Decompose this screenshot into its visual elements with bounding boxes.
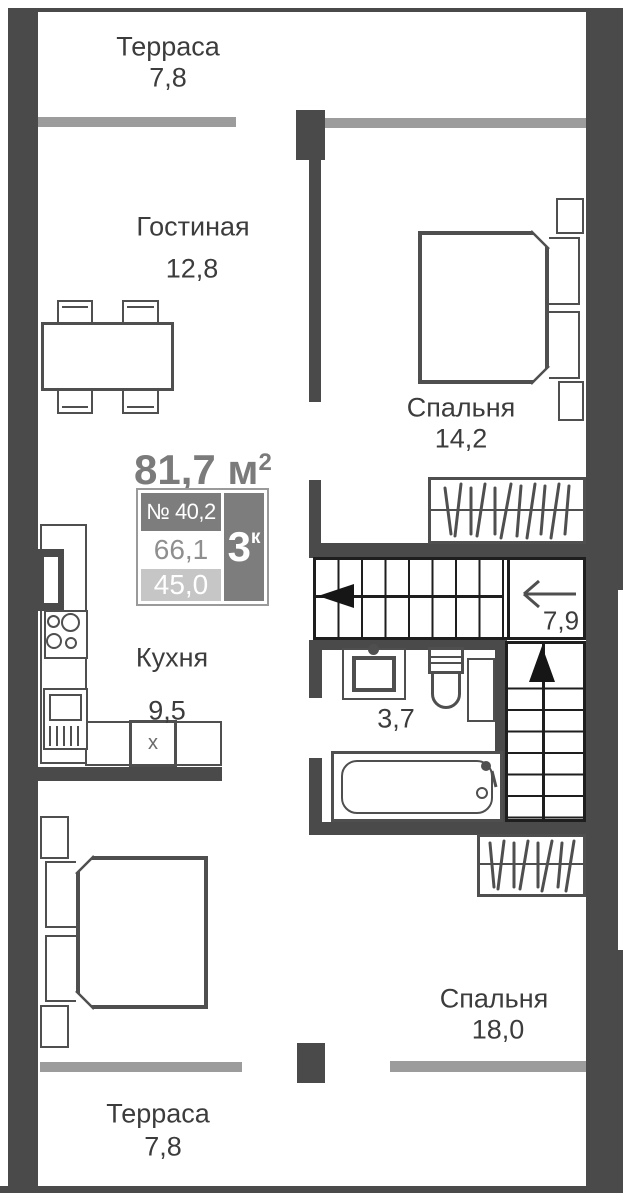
info-card-left-column: № 40,2 66,1 45,0 — [141, 493, 221, 601]
bed-pillow — [546, 237, 580, 305]
dining-table — [41, 322, 174, 391]
wall-living-bedroom-upper — [309, 148, 321, 402]
toilet-tank — [428, 647, 464, 674]
chair-back-line — [127, 306, 154, 308]
wardrobe-hangers-icon — [480, 837, 583, 894]
kitchen-tall-cabinet-inner — [44, 557, 58, 603]
right-edge-notch — [616, 590, 623, 950]
dishwasher-hatch-icon — [49, 726, 82, 746]
wall-top — [38, 8, 623, 12]
nightstand — [556, 198, 584, 234]
bed-mattress — [76, 856, 208, 1009]
total-area-superscript: 2 — [258, 449, 271, 476]
wall-bathroom-top — [309, 640, 507, 650]
rooms-count-value: 3 — [228, 523, 251, 571]
room-area-kitchen: 9,5 — [148, 696, 186, 727]
room-area-bedroom-top: 14,2 — [435, 424, 488, 455]
wall-kitchen-bottom — [38, 767, 222, 781]
room-label-living: Гостиная — [136, 212, 249, 243]
floor-plan: x Терраса 7,8 Гостиная 12,8 Спальня 14,2… — [0, 0, 623, 1193]
wall-left — [8, 8, 38, 1186]
wardrobe — [477, 834, 586, 897]
total-area-value: 81,7 м — [134, 446, 258, 493]
secondary-area-cell: 45,0 — [141, 569, 221, 601]
toilet-bowl — [431, 671, 461, 709]
room-area-bathroom: 3,7 — [377, 704, 415, 735]
wall-bathroom-left-lower — [309, 758, 322, 832]
window-terrace-top-left — [38, 117, 236, 127]
bathroom-sink-basin — [352, 656, 396, 692]
bed-pillow — [546, 311, 580, 379]
nightstand — [40, 816, 69, 859]
stove-burner-icon — [65, 637, 77, 649]
rooms-count-cell: 3к — [224, 493, 264, 601]
wardrobe — [428, 477, 586, 544]
stairs-up-arrow-icon — [529, 646, 555, 682]
kitchen-sink-unit: x — [129, 720, 177, 767]
room-label-bedroom-bottom: Спальня — [440, 984, 549, 1015]
wall-pillar-bottom — [297, 1043, 325, 1083]
stove-burner-icon — [47, 615, 60, 628]
apartment-info-card: № 40,2 66,1 45,0 3к — [136, 488, 269, 606]
kitchen-sink-label: x — [148, 732, 158, 755]
bathroom-door-leaf — [467, 658, 495, 722]
wall-bottom — [0, 1186, 623, 1193]
room-area-terrace-bottom: 7,8 — [144, 1132, 182, 1163]
room-label-kitchen: Кухня — [136, 643, 208, 674]
apartment-number-cell: № 40,2 — [141, 493, 221, 531]
rooms-count-superscript: к — [251, 527, 261, 549]
wall-bathroom-left-upper — [309, 648, 322, 698]
room-area-bedroom-bottom: 18,0 — [472, 1015, 525, 1046]
room-area-stairs: 7,9 — [543, 606, 579, 637]
window-terrace-top-right — [325, 118, 586, 128]
bed-mattress — [418, 231, 549, 384]
wall-stairs-top — [309, 543, 586, 558]
sink-tap-icon — [368, 644, 379, 655]
chair-back-line — [62, 306, 88, 308]
room-label-terrace-bottom: Терраса — [106, 1099, 210, 1130]
room-label-terrace-top: Терраса — [116, 32, 220, 63]
window-terrace-bottom-right — [390, 1061, 586, 1072]
stove-burner-icon — [61, 613, 80, 632]
room-label-bedroom-top: Спальня — [407, 393, 516, 424]
dishwasher-panel — [49, 694, 82, 721]
room-area-terrace-top: 7,8 — [149, 63, 187, 94]
chair-back-line — [62, 406, 88, 408]
stair-treads — [508, 668, 583, 819]
total-area-title: 81,7 м2 — [134, 449, 272, 491]
room-area-living: 12,8 — [166, 254, 219, 285]
window-terrace-bottom-left — [40, 1062, 242, 1072]
wardrobe-hangers-icon — [431, 480, 583, 541]
stairs-direction-arrow-icon — [318, 584, 354, 608]
nightstand — [40, 1005, 69, 1048]
living-area-cell: 66,1 — [141, 534, 221, 566]
stove-burner-icon — [46, 633, 62, 649]
chair-back-line — [127, 406, 154, 408]
nightstand — [558, 381, 584, 421]
bathtub-inner — [341, 760, 493, 814]
